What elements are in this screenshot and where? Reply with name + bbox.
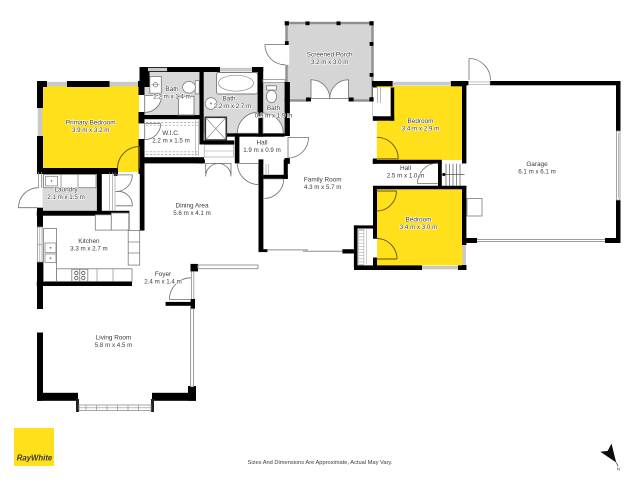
- svg-text:Hall: Hall: [256, 140, 267, 147]
- svg-text:6.1 m x 6.1 m: 6.1 m x 6.1 m: [518, 169, 555, 176]
- svg-text:2.2 m x 2.7 m: 2.2 m x 2.7 m: [214, 103, 251, 110]
- svg-text:Bath: Bath: [222, 96, 236, 103]
- svg-text:2.5 m x 1.0 m: 2.5 m x 1.0 m: [387, 173, 424, 180]
- svg-text:3.4 m x 2.9 m: 3.4 m x 2.9 m: [402, 126, 439, 133]
- svg-text:3.3 m x 2.7 m: 3.3 m x 2.7 m: [70, 246, 107, 253]
- svg-text:2.2 m x 1.4 m: 2.2 m x 1.4 m: [153, 94, 190, 101]
- svg-text:3.9 m x 3.2 m: 3.9 m x 3.2 m: [72, 127, 109, 134]
- svg-text:Dining Area: Dining Area: [175, 203, 208, 210]
- svg-text:Garage: Garage: [526, 161, 548, 168]
- svg-text:Family Room: Family Room: [304, 177, 342, 184]
- svg-text:N: N: [617, 467, 620, 472]
- svg-text:RayWhite: RayWhite: [17, 454, 53, 463]
- svg-text:2.1 m x 1.5 m: 2.1 m x 1.5 m: [47, 194, 84, 201]
- svg-text:Bath: Bath: [165, 86, 179, 93]
- svg-text:5.6 m x 4.1 m: 5.6 m x 4.1 m: [173, 210, 210, 217]
- svg-text:Screened Porch: Screened Porch: [307, 52, 353, 59]
- svg-text:1.9 m x 0.9 m: 1.9 m x 0.9 m: [243, 147, 280, 154]
- svg-text:Laundry: Laundry: [54, 187, 78, 194]
- svg-text:4.3 m x 5.7 m: 4.3 m x 5.7 m: [304, 184, 341, 191]
- svg-text:Sizes And Dimensions Are Appro: Sizes And Dimensions Are Approximate, Ac…: [248, 460, 393, 466]
- svg-text:2.2 m x 1.5 m: 2.2 m x 1.5 m: [152, 138, 189, 145]
- svg-text:Living Room: Living Room: [96, 335, 132, 342]
- svg-text:Kitchen: Kitchen: [78, 238, 100, 245]
- svg-text:3.4 m x 3.0 m: 3.4 m x 3.0 m: [400, 224, 437, 231]
- svg-text:Bedroom: Bedroom: [408, 118, 434, 125]
- svg-text:5.8 m x 4.5 m: 5.8 m x 4.5 m: [95, 342, 132, 349]
- svg-text:Primary Bedroom: Primary Bedroom: [66, 120, 116, 127]
- svg-text:Bedroom: Bedroom: [406, 217, 432, 224]
- svg-text:Foyer: Foyer: [155, 271, 172, 278]
- svg-text:0.9 m x 1.9 m: 0.9 m x 1.9 m: [255, 113, 292, 120]
- svg-text:2.4 m x 1.4 m: 2.4 m x 1.4 m: [144, 279, 181, 286]
- svg-text:W.I.C.: W.I.C.: [162, 130, 180, 137]
- svg-text:3.2 m x 3.0 m: 3.2 m x 3.0 m: [311, 59, 348, 66]
- svg-text:Hall: Hall: [400, 165, 411, 172]
- svg-text:Bath: Bath: [267, 105, 281, 112]
